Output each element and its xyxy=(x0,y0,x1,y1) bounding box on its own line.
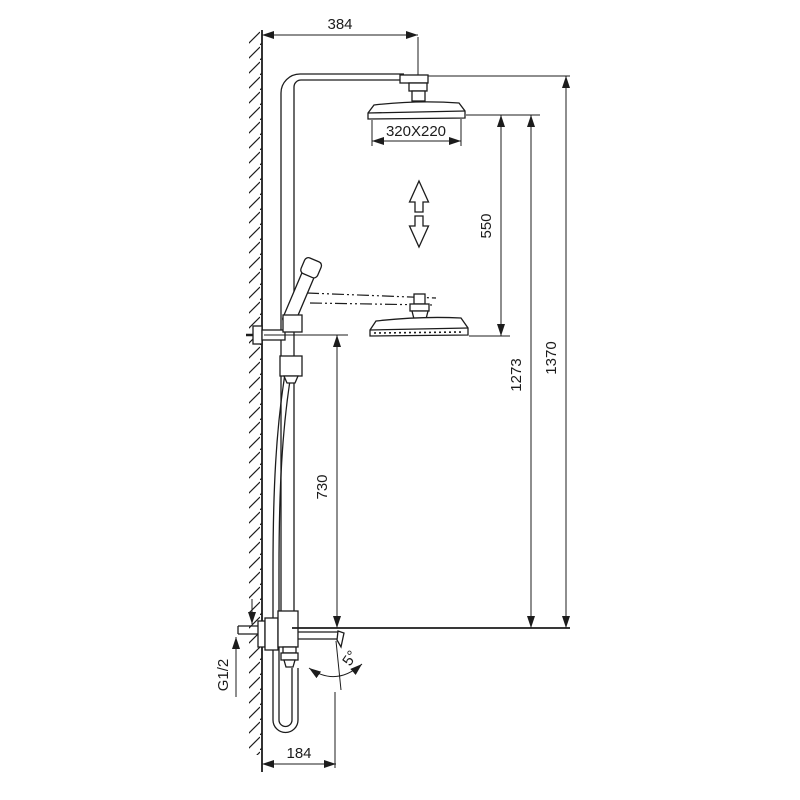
head-connector-lower xyxy=(412,91,425,101)
dim-height-adjust: 550 xyxy=(478,115,501,336)
dim-inlet-thread-label: G1/2 xyxy=(215,659,232,692)
head-connector-upper xyxy=(409,83,427,91)
dim-inlet-thread: G1/2 xyxy=(215,599,252,697)
ext-spout-tilt xyxy=(336,641,341,690)
dim-arm-reach: 384 xyxy=(262,16,418,35)
lower-shower-position xyxy=(370,294,468,336)
wall-bracket-plate xyxy=(253,326,262,344)
arm-outer-line xyxy=(281,74,404,612)
lower-stem-flange xyxy=(410,304,429,311)
dim-lower-head-height-label: 1273 xyxy=(508,358,525,391)
hose-nut xyxy=(281,653,298,660)
mixer-wall-flange-outer xyxy=(258,621,265,647)
dim-spout-reach-label: 184 xyxy=(286,745,311,762)
shower-column-drawing: 384 320X220 550 1273 1370 730 G1/2 xyxy=(0,0,800,800)
wall xyxy=(249,30,262,772)
dim-bracket-height: 730 xyxy=(314,335,337,628)
arm-inner-line xyxy=(294,80,400,612)
arm-mount-plate xyxy=(400,75,428,83)
technical-drawing-page: 384 320X220 550 1273 1370 730 G1/2 xyxy=(0,0,800,800)
dim-total-height: 1370 xyxy=(543,76,566,628)
dim-bracket-height-label: 730 xyxy=(314,474,331,499)
overhead-shower xyxy=(368,75,465,119)
riser-rail-and-arm xyxy=(281,74,404,612)
hand-shower-holder xyxy=(283,315,302,332)
spout-tip xyxy=(337,631,344,647)
arrow-up-icon xyxy=(410,181,429,212)
dim-lower-head-height: 1273 xyxy=(508,115,531,628)
dim-spout-angle: 5° xyxy=(309,648,362,677)
lower-stem-top xyxy=(414,294,425,304)
height-adjust-arrows xyxy=(410,181,429,247)
dim-spout-reach: 184 xyxy=(262,745,336,764)
hose-nut-top xyxy=(283,647,296,653)
mixer-body xyxy=(278,611,298,647)
mixer-wall-flange-inner xyxy=(265,618,278,650)
hose-nut-cone xyxy=(284,660,295,667)
arrow-down-icon xyxy=(410,216,429,247)
dim-arm-reach-label: 384 xyxy=(327,16,352,33)
dim-total-height-label: 1370 xyxy=(543,341,560,374)
rail-slider-cone xyxy=(284,376,298,383)
extension-lines xyxy=(264,37,570,768)
dim-spout-angle-label: 5° xyxy=(339,648,361,670)
rail-slider xyxy=(280,356,302,376)
dim-head-size: 320X220 xyxy=(372,123,461,141)
overhead-shower-head xyxy=(368,102,465,119)
dim-height-adjust-label: 550 xyxy=(478,213,495,238)
dimensions: 384 320X220 550 1273 1370 730 G1/2 xyxy=(215,16,566,764)
dim-head-size-label: 320X220 xyxy=(386,123,446,140)
